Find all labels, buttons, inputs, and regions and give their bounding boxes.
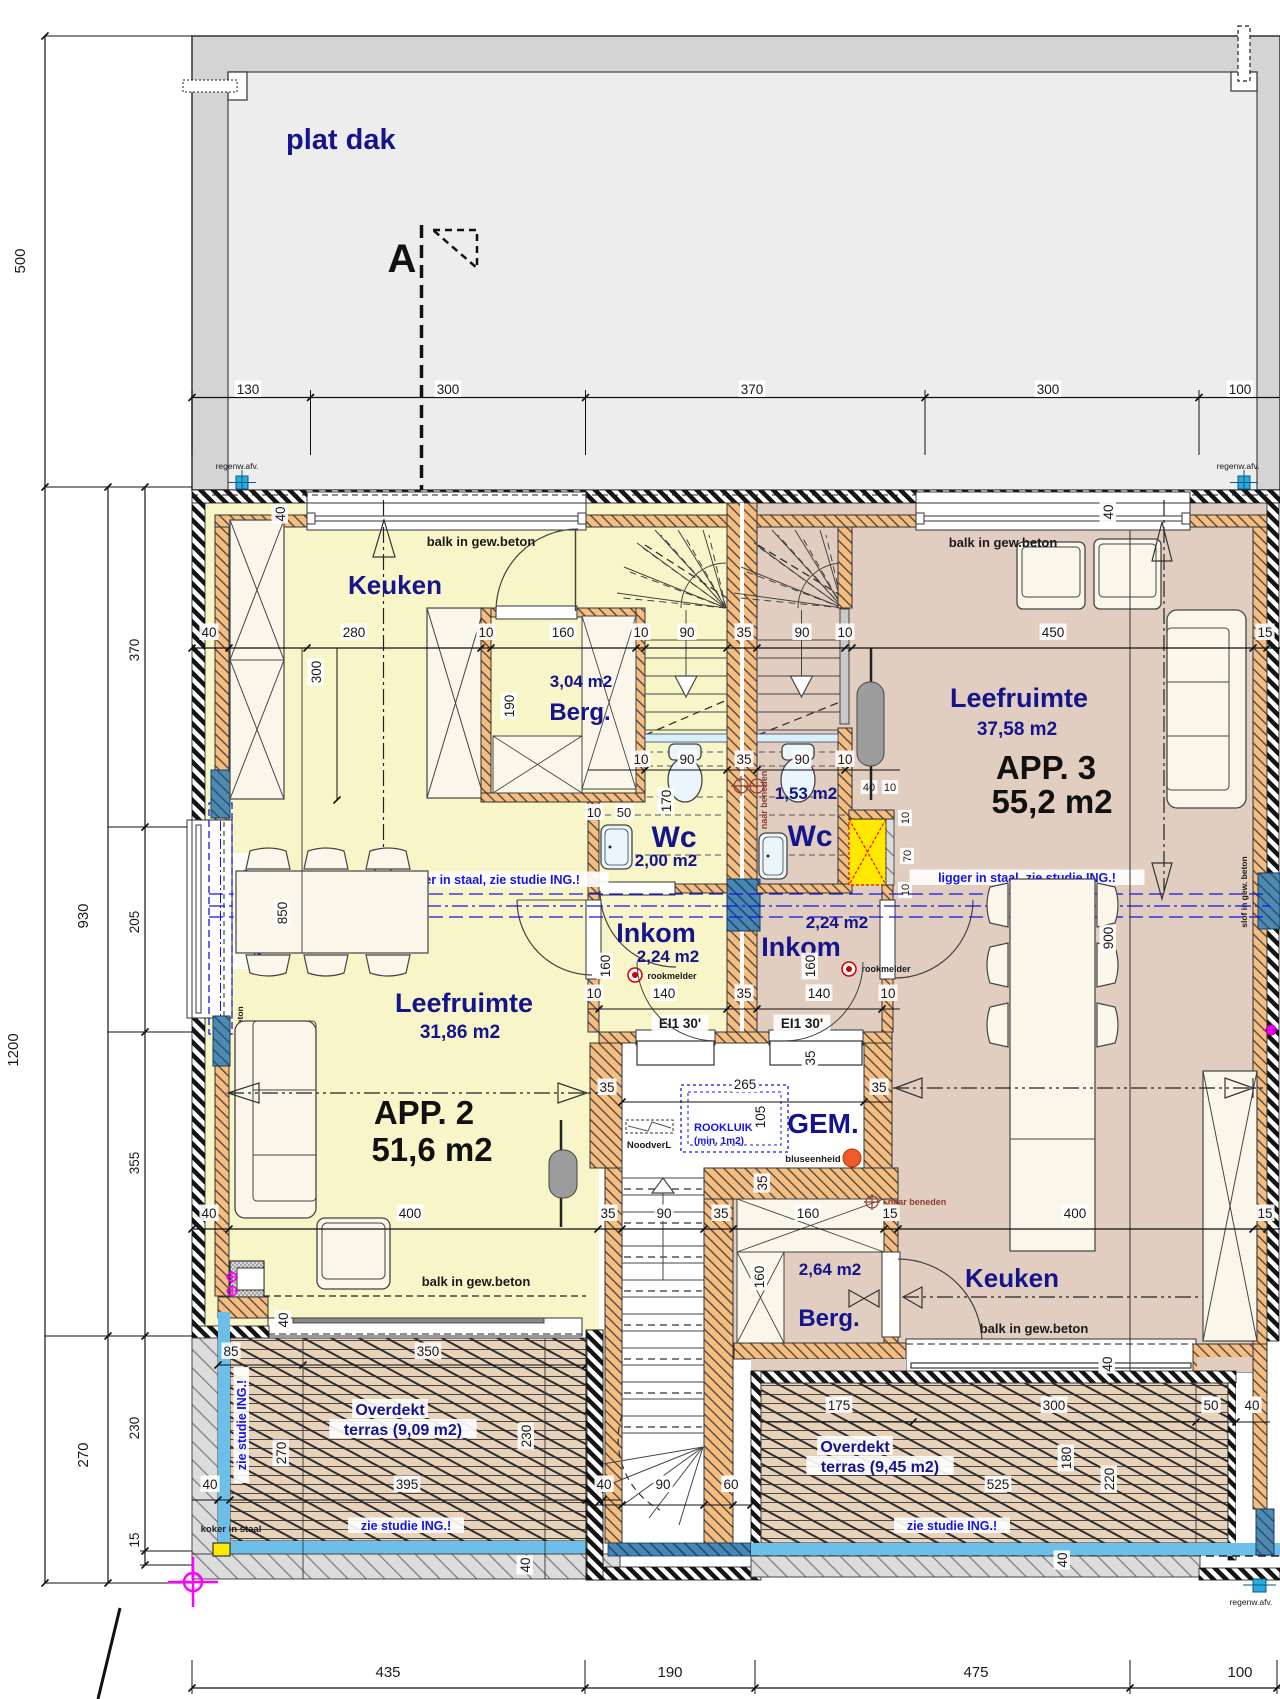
svg-text:2,24 m2: 2,24 m2: [637, 947, 699, 966]
svg-text:170: 170: [659, 790, 674, 813]
svg-text:395: 395: [396, 1477, 419, 1492]
svg-text:10: 10: [884, 782, 896, 794]
svg-text:15: 15: [882, 1206, 897, 1221]
svg-text:70: 70: [902, 850, 914, 862]
svg-text:35: 35: [736, 752, 751, 767]
svg-text:60: 60: [723, 1477, 738, 1492]
svg-text:balk in gew.beton: balk in gew.beton: [949, 535, 1058, 550]
svg-text:40: 40: [596, 1477, 611, 1492]
svg-text:10: 10: [478, 625, 493, 640]
svg-text:1,53 m2: 1,53 m2: [775, 784, 837, 803]
svg-text:Keuken: Keuken: [965, 1263, 1059, 1293]
svg-text:plat dak: plat dak: [286, 124, 396, 156]
svg-text:40: 40: [202, 1477, 217, 1492]
svg-text:270: 270: [274, 1442, 289, 1465]
svg-text:10: 10: [837, 752, 852, 767]
svg-text:230: 230: [519, 1425, 534, 1448]
svg-text:40: 40: [1055, 1552, 1070, 1567]
svg-text:370: 370: [127, 639, 142, 662]
svg-text:160: 160: [598, 955, 613, 978]
svg-text:balk in gew.beton: balk in gew.beton: [427, 534, 536, 549]
svg-text:100: 100: [1227, 1664, 1252, 1681]
svg-text:160: 160: [752, 1266, 767, 1289]
svg-text:bluseenheid: bluseenheid: [785, 1154, 841, 1165]
svg-text:270: 270: [75, 1442, 92, 1467]
svg-text:rookmelder: rookmelder: [861, 964, 911, 974]
svg-text:10: 10: [633, 752, 648, 767]
svg-text:40: 40: [273, 506, 288, 521]
svg-text:35: 35: [755, 1175, 770, 1190]
svg-text:rookmelder: rookmelder: [647, 971, 697, 981]
svg-text:85: 85: [223, 1344, 238, 1359]
svg-text:35: 35: [600, 1206, 615, 1221]
svg-text:10: 10: [880, 986, 895, 1001]
svg-text:35: 35: [871, 1080, 886, 1095]
svg-text:37,58 m2: 37,58 m2: [977, 719, 1057, 740]
svg-text:Inkom: Inkom: [616, 918, 696, 948]
svg-text:265: 265: [734, 1077, 757, 1092]
svg-text:400: 400: [399, 1206, 422, 1221]
svg-text:90: 90: [679, 752, 694, 767]
svg-text:35: 35: [599, 1080, 614, 1095]
svg-text:300: 300: [1043, 1398, 1066, 1413]
svg-text:180: 180: [1059, 1447, 1074, 1470]
svg-text:1200: 1200: [5, 1033, 22, 1066]
svg-text:90: 90: [794, 752, 809, 767]
svg-text:190: 190: [657, 1664, 682, 1681]
svg-text:A: A: [388, 237, 417, 281]
svg-text:35: 35: [803, 1050, 818, 1065]
svg-text:EI1 30': EI1 30': [781, 1016, 823, 1031]
svg-text:15: 15: [127, 1532, 142, 1547]
svg-text:2,00 m2: 2,00 m2: [635, 851, 697, 870]
svg-text:525: 525: [987, 1477, 1010, 1492]
svg-text:40: 40: [201, 1206, 216, 1221]
svg-text:140: 140: [653, 986, 676, 1001]
svg-text:355: 355: [127, 1152, 142, 1175]
svg-text:ligger in staal, zie studie IN: ligger in staal, zie studie ING.!: [402, 873, 580, 887]
svg-text:190: 190: [502, 695, 517, 718]
svg-text:Overdekt: Overdekt: [820, 1439, 890, 1456]
svg-text:160: 160: [803, 955, 818, 978]
svg-text:435: 435: [375, 1664, 400, 1681]
svg-text:300: 300: [437, 382, 460, 397]
svg-text:300: 300: [309, 661, 324, 684]
svg-text:Inkom: Inkom: [761, 932, 841, 962]
svg-text:51,6 m2: 51,6 m2: [371, 1131, 492, 1168]
svg-text:31,86 m2: 31,86 m2: [420, 1022, 500, 1043]
svg-text:280: 280: [343, 625, 366, 640]
svg-text:400: 400: [1064, 1206, 1087, 1221]
svg-text:10: 10: [900, 812, 912, 824]
svg-text:175: 175: [828, 1398, 851, 1413]
svg-text:10: 10: [587, 805, 601, 820]
svg-text:930: 930: [75, 903, 92, 928]
svg-text:350: 350: [417, 1344, 440, 1359]
svg-text:balk in gew.beton: balk in gew.beton: [980, 1321, 1089, 1336]
svg-text:900: 900: [1101, 927, 1116, 950]
svg-text:Berg.: Berg.: [549, 699, 610, 726]
svg-text:regenw.afv.: regenw.afv.: [1230, 1597, 1273, 1607]
svg-text:Overdekt: Overdekt: [355, 1402, 425, 1419]
svg-text:Leefruimte: Leefruimte: [950, 683, 1088, 713]
svg-text:90: 90: [679, 625, 694, 640]
svg-text:APP. 3: APP. 3: [996, 749, 1096, 786]
svg-text:40: 40: [1244, 1398, 1259, 1413]
svg-text:Keuken: Keuken: [348, 570, 442, 600]
svg-text:Wc: Wc: [652, 821, 697, 854]
svg-text:balk in gew.beton: balk in gew.beton: [422, 1274, 531, 1289]
svg-text:10: 10: [837, 625, 852, 640]
svg-text:Wc: Wc: [788, 820, 833, 853]
svg-text:50: 50: [617, 805, 631, 820]
svg-text:130: 130: [237, 382, 260, 397]
svg-text:850: 850: [275, 902, 290, 925]
svg-text:2,24 m2: 2,24 m2: [806, 913, 868, 932]
svg-text:370: 370: [741, 382, 764, 397]
svg-text:475: 475: [963, 1664, 988, 1681]
svg-text:90: 90: [655, 1477, 670, 1492]
svg-text:40: 40: [201, 625, 216, 640]
svg-text:55,2 m2: 55,2 m2: [991, 783, 1112, 820]
svg-text:10: 10: [633, 625, 648, 640]
svg-text:140: 140: [808, 986, 831, 1001]
svg-text:40: 40: [518, 1557, 533, 1572]
svg-text:GEM.: GEM.: [787, 1108, 859, 1139]
svg-text:40: 40: [1101, 504, 1116, 519]
svg-text:ROOKLUIK: ROOKLUIK: [694, 1122, 753, 1134]
svg-text:10: 10: [586, 986, 601, 1001]
svg-text:500: 500: [12, 248, 29, 273]
svg-text:15: 15: [1257, 625, 1272, 640]
svg-text:230: 230: [127, 1417, 142, 1440]
svg-text:koker in staal: koker in staal: [201, 1524, 262, 1535]
svg-text:35: 35: [713, 1206, 728, 1221]
svg-text:(min. 1m2): (min. 1m2): [694, 1136, 744, 1147]
svg-text:regenw.afv.: regenw.afv.: [216, 461, 259, 471]
svg-text:APP. 2: APP. 2: [374, 1094, 474, 1131]
svg-text:EI1 30': EI1 30': [659, 1016, 701, 1031]
svg-text:40: 40: [276, 1312, 291, 1327]
svg-text:300: 300: [1037, 382, 1060, 397]
svg-text:100: 100: [1229, 382, 1252, 397]
svg-text:450: 450: [1042, 625, 1065, 640]
svg-text:NoodverL: NoodverL: [627, 1140, 672, 1151]
svg-text:2,64 m2: 2,64 m2: [799, 1260, 861, 1279]
svg-text:90: 90: [794, 625, 809, 640]
svg-text:40: 40: [1100, 1356, 1115, 1371]
svg-text:160: 160: [552, 625, 575, 640]
svg-text:105: 105: [753, 1106, 768, 1129]
svg-text:35: 35: [736, 625, 751, 640]
svg-text:90: 90: [656, 1206, 671, 1221]
svg-text:terras (9,45 m2): terras (9,45 m2): [821, 1459, 939, 1476]
svg-text:Berg.: Berg.: [798, 1305, 859, 1332]
svg-text:Leefruimte: Leefruimte: [395, 988, 533, 1018]
svg-text:50: 50: [1203, 1398, 1218, 1413]
svg-text:zie studie ING.!: zie studie ING.!: [907, 1519, 997, 1533]
svg-text:15: 15: [1257, 1206, 1272, 1221]
svg-text:205: 205: [127, 911, 142, 934]
svg-text:35: 35: [736, 986, 751, 1001]
svg-text:zie studie ING.!: zie studie ING.!: [361, 1519, 451, 1533]
svg-text:40: 40: [863, 782, 875, 794]
svg-text:zie studie ING.!: zie studie ING.!: [235, 1380, 249, 1470]
svg-text:220: 220: [1102, 1468, 1117, 1491]
svg-text:160: 160: [797, 1206, 820, 1221]
svg-text:regenw.afv.: regenw.afv.: [1217, 461, 1260, 471]
svg-text:3,04 m2: 3,04 m2: [550, 672, 612, 691]
svg-text:terras (9,09 m2): terras (9,09 m2): [344, 1422, 462, 1439]
